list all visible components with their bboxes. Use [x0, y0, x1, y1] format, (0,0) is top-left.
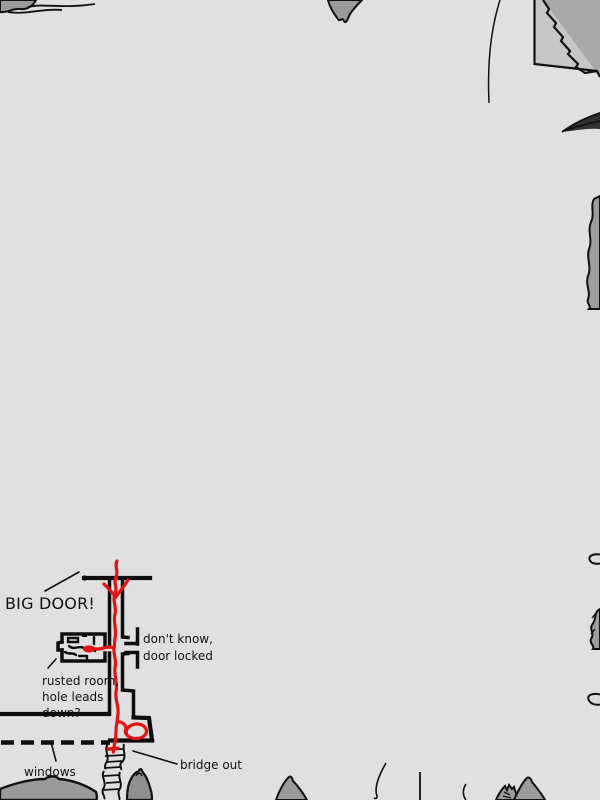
label-big-door: BIG DOOR!	[5, 594, 95, 613]
svg-text:down?: down?	[42, 706, 81, 720]
label-windows: windows	[24, 765, 76, 779]
svg-text:hole leads: hole leads	[42, 690, 103, 704]
hand-drawn-map: BIG DOOR! don't know, door locked rusted…	[0, 0, 600, 800]
map-canvas[interactable]: BIG DOOR! don't know, door locked rusted…	[0, 0, 600, 800]
ledge-tab-upper-right	[589, 554, 600, 564]
svg-text:rusted room,: rusted room,	[42, 674, 119, 688]
route-room-blob	[83, 645, 95, 652]
route-room-branch	[93, 647, 114, 649]
ledge-tab-lower-right	[588, 694, 600, 705]
route-end-cross	[108, 748, 118, 749]
svg-text:door locked: door locked	[143, 649, 213, 663]
svg-text:don't know,: don't know,	[143, 632, 213, 646]
label-bridge-out: bridge out	[180, 758, 242, 772]
